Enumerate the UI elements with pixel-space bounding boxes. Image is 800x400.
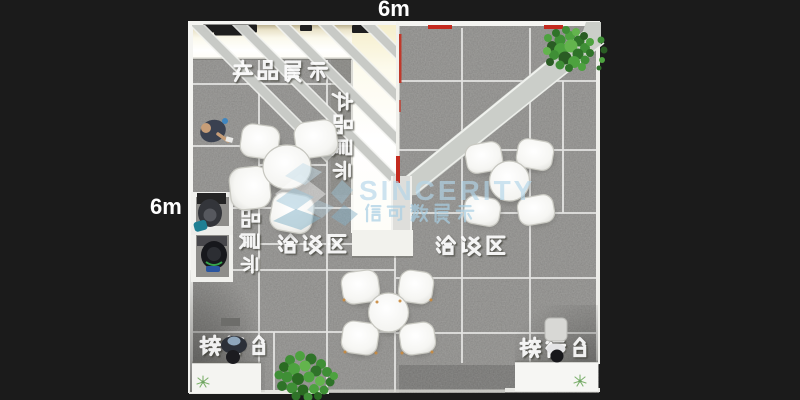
svg-text:6m: 6m	[378, 0, 410, 21]
svg-text:6m: 6m	[150, 194, 182, 219]
svg-text:SINCERITY: SINCERITY	[359, 175, 535, 206]
